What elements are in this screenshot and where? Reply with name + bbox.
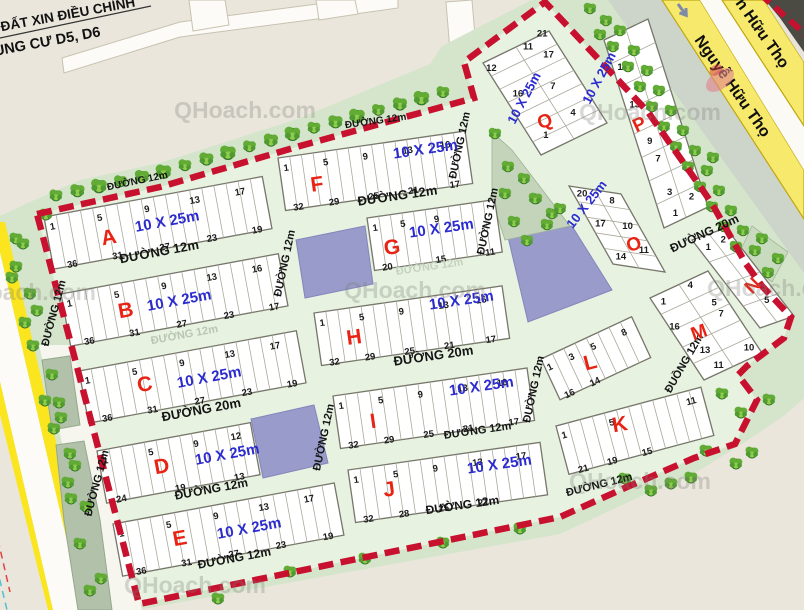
svg-text:QHoach.com: QHoach.com [0, 279, 96, 305]
svg-text:QHoach.com: QHoach.com [344, 277, 486, 303]
svg-text:10: 10 [744, 343, 755, 354]
svg-text:4: 4 [688, 280, 694, 291]
svg-text:17: 17 [269, 340, 281, 353]
svg-text:32: 32 [329, 356, 341, 368]
svg-text:23: 23 [206, 232, 218, 245]
svg-text:2: 2 [721, 234, 726, 245]
svg-text:11: 11 [523, 42, 534, 53]
svg-text:14: 14 [616, 252, 627, 263]
svg-text:1: 1 [673, 208, 679, 219]
svg-text:17: 17 [234, 186, 246, 199]
svg-text:23: 23 [275, 539, 287, 552]
svg-text:13: 13 [206, 271, 218, 284]
svg-text:1: 1 [661, 297, 667, 308]
svg-text:17: 17 [485, 334, 497, 346]
svg-text:9: 9 [647, 136, 652, 147]
svg-text:29: 29 [383, 434, 395, 446]
svg-text:13: 13 [700, 345, 711, 356]
svg-text:1: 1 [706, 242, 712, 253]
svg-text:G: G [382, 235, 401, 260]
svg-text:17: 17 [268, 301, 280, 314]
svg-text:17: 17 [449, 179, 461, 191]
svg-text:8: 8 [609, 195, 614, 206]
svg-text:7: 7 [719, 308, 724, 319]
svg-text:QHoach.com: QHoach.com [174, 97, 316, 123]
svg-text:19: 19 [251, 224, 263, 237]
svg-text:19: 19 [322, 531, 334, 544]
svg-text:12: 12 [486, 63, 497, 74]
svg-text:36: 36 [101, 412, 113, 425]
svg-text:36: 36 [83, 335, 95, 348]
svg-text:28: 28 [398, 508, 410, 520]
svg-text:4: 4 [570, 108, 576, 119]
svg-text:23: 23 [223, 309, 235, 322]
svg-text:13: 13 [189, 194, 201, 207]
svg-text:36: 36 [66, 258, 78, 271]
svg-text:QHoach.com: QHoach.com [579, 99, 721, 125]
svg-text:12: 12 [230, 431, 242, 444]
svg-text:10: 10 [622, 221, 633, 232]
svg-text:QHoach.com: QHoach.com [124, 572, 266, 598]
svg-text:29: 29 [364, 351, 376, 363]
svg-text:32: 32 [348, 439, 360, 451]
svg-text:17: 17 [303, 493, 315, 506]
svg-text:19: 19 [286, 378, 298, 391]
svg-text:QHoach.com: QHoach.com [569, 468, 711, 494]
svg-text:7: 7 [550, 81, 555, 92]
svg-text:3: 3 [667, 187, 672, 198]
svg-text:2: 2 [689, 192, 694, 203]
svg-text:13: 13 [258, 501, 270, 514]
svg-text:29: 29 [328, 196, 340, 208]
svg-text:H: H [345, 325, 363, 350]
svg-text:20: 20 [382, 261, 394, 273]
svg-text:16: 16 [251, 263, 263, 276]
svg-text:32: 32 [293, 201, 305, 213]
svg-text:16: 16 [669, 321, 680, 332]
svg-text:21: 21 [537, 29, 548, 40]
svg-text:7: 7 [655, 154, 660, 165]
svg-text:32: 32 [363, 513, 375, 525]
svg-text:17: 17 [595, 218, 606, 229]
svg-text:QHoach.com: QHoach.com [707, 275, 804, 301]
svg-text:11: 11 [714, 360, 725, 371]
svg-text:13: 13 [224, 348, 236, 361]
svg-text:17: 17 [543, 50, 554, 61]
svg-text:23: 23 [241, 386, 253, 399]
